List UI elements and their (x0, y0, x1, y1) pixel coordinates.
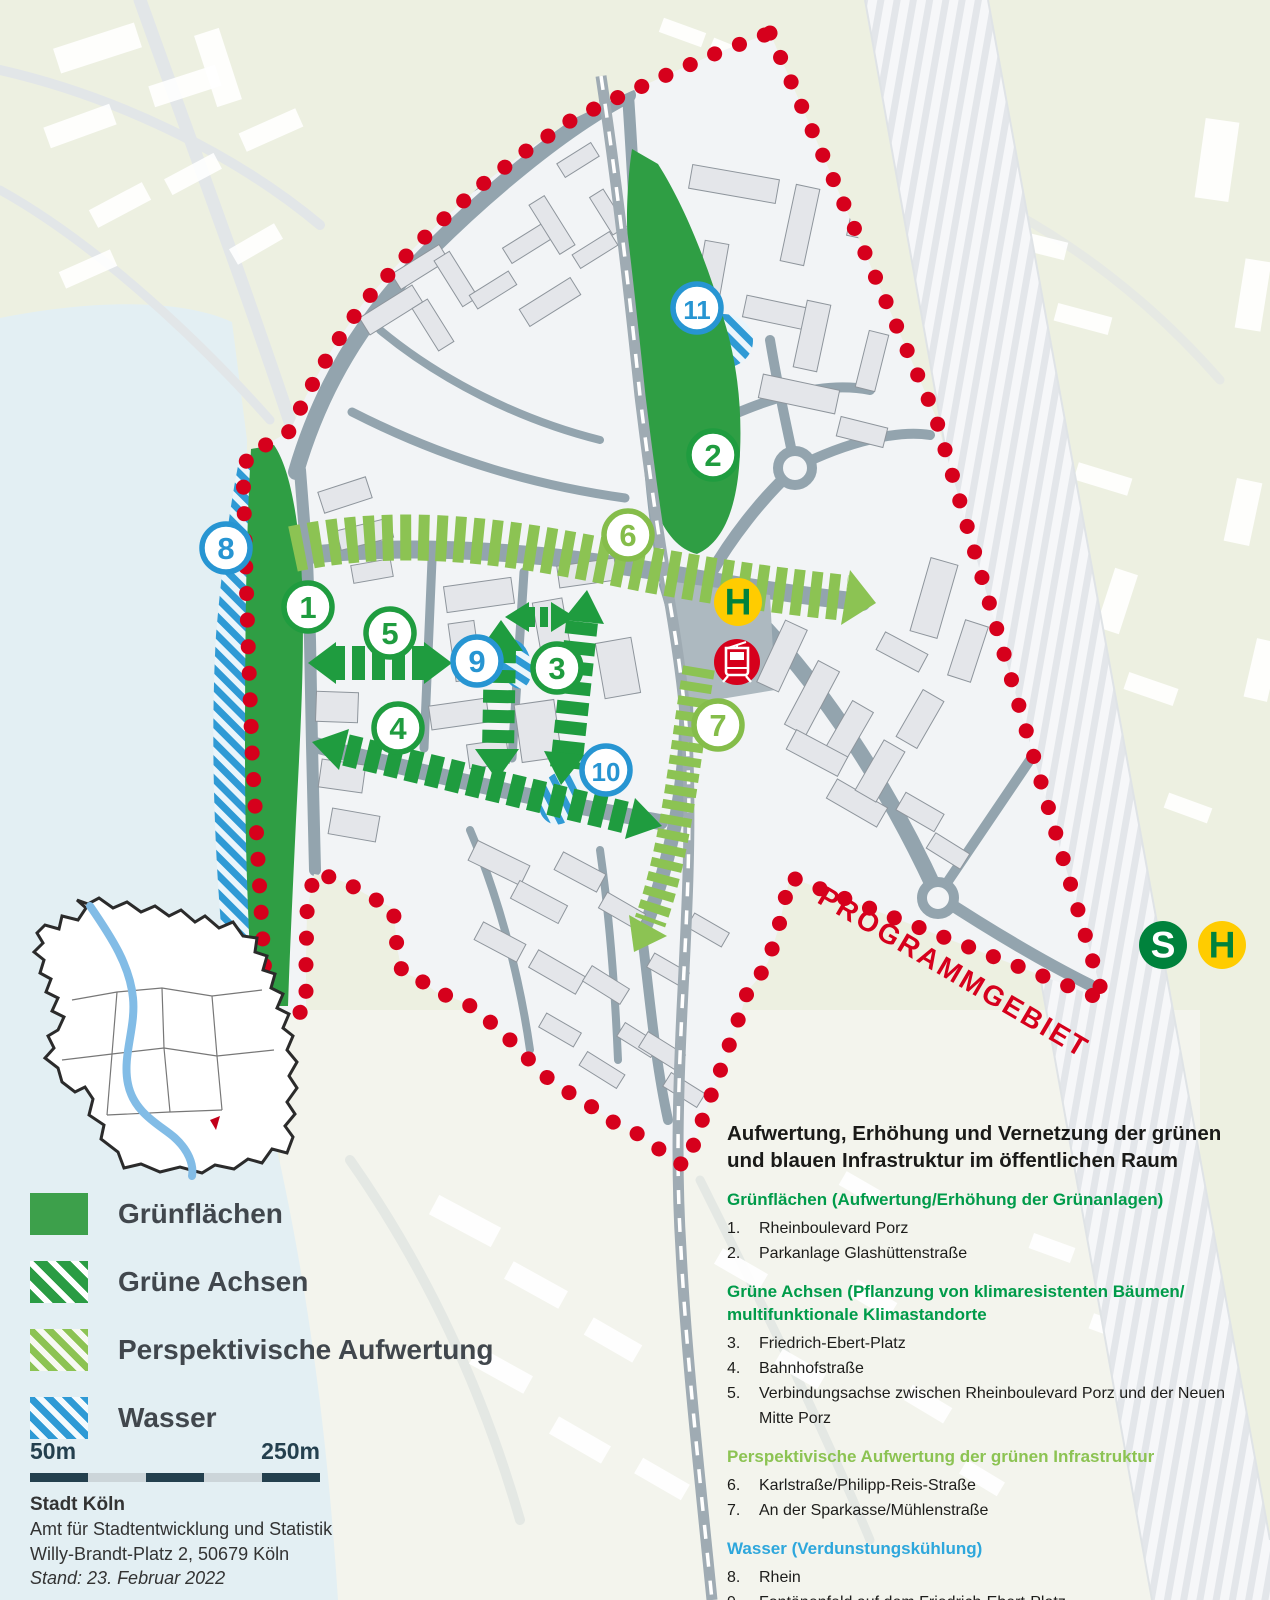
marker-7: 7 (694, 701, 742, 749)
legend-swatch-solid-green (30, 1193, 88, 1235)
marker-9: 9 (453, 637, 501, 685)
info-section-3: Wasser (Verdunstungskühlung)8.Rhein9.Fon… (727, 1537, 1249, 1600)
info-title-line2: und blauen Infrastruktur im öffentlichen… (727, 1147, 1249, 1174)
marker-6: 6 (604, 511, 652, 559)
marker-11: 11 (673, 284, 721, 332)
svg-text:6: 6 (619, 518, 636, 553)
section-list-item: 1.Rheinboulevard Porz (727, 1216, 1249, 1241)
legend-item-0: Grünflächen (30, 1192, 494, 1235)
plan-canvas: PROGRAMMGEBIET 1234567891011 HSH Grünflä… (0, 0, 1270, 1600)
scale-left-label: 50m (30, 1438, 76, 1465)
legend-label: Grünflächen (118, 1198, 283, 1230)
legend-item-1: Grüne Achsen (30, 1260, 494, 1303)
legend: GrünflächenGrüne AchsenPerspektivische A… (30, 1192, 494, 1464)
info-sections: Grünflächen (Aufwertung/Erhöhung der Grü… (727, 1188, 1249, 1600)
legend-label: Grüne Achsen (118, 1266, 308, 1298)
sbahn-icon: S (1139, 921, 1187, 969)
haltestelle-icon: H (714, 578, 762, 626)
marker-8: 8 (202, 524, 250, 572)
svg-text:H: H (1209, 924, 1236, 966)
inset-city-map (12, 880, 312, 1180)
section-heading: Perspektivische Aufwertung der grünen In… (727, 1445, 1249, 1468)
date-note: Stand: 23. Februar 2022 (30, 1568, 225, 1589)
section-list-item: 4.Bahnhofstraße (727, 1356, 1249, 1381)
scale-bar: 50m 250m (30, 1438, 320, 1482)
haltestelle-icon: H (1198, 921, 1246, 969)
scale-right-label: 250m (261, 1438, 320, 1465)
section-list-item: 2.Parkanlage Glashüttenstraße (727, 1241, 1249, 1266)
section-list-item: 6.Karlstraße/Philipp-Reis-Straße (727, 1473, 1249, 1498)
marker-10: 10 (582, 746, 630, 794)
marker-4: 4 (374, 704, 422, 752)
svg-text:10: 10 (592, 757, 621, 787)
roundabout (922, 882, 954, 914)
legend-swatch-hatch-blue (30, 1397, 88, 1439)
svg-text:S: S (1151, 924, 1176, 966)
legend-swatch-hatch-lightgreen (30, 1329, 88, 1371)
marker-1: 1 (284, 583, 332, 631)
section-list-item: 8.Rhein (727, 1565, 1249, 1590)
info-section-0: Grünflächen (Aufwertung/Erhöhung der Grü… (727, 1188, 1249, 1266)
info-section-2: Perspektivische Aufwertung der grünen In… (727, 1445, 1249, 1523)
svg-text:H: H (725, 581, 752, 623)
info-panel: Aufwertung, Erhöhung und Vernetzung der … (727, 1120, 1249, 1600)
marker-5: 5 (366, 609, 414, 657)
section-heading: Grüne Achsen (Pflanzung von klimaresiste… (727, 1280, 1249, 1326)
roundabout (778, 451, 812, 485)
info-section-1: Grüne Achsen (Pflanzung von klimaresiste… (727, 1280, 1249, 1431)
section-list-item: 3.Friedrich-Ebert-Platz (727, 1331, 1249, 1356)
marker-2: 2 (689, 431, 737, 479)
svg-text:1: 1 (299, 590, 316, 625)
section-heading: Grünflächen (Aufwertung/Erhöhung der Grü… (727, 1188, 1249, 1211)
marker-3: 3 (533, 644, 581, 692)
legend-swatch-hatch-darkgreen (30, 1261, 88, 1303)
section-heading: Wasser (Verdunstungskühlung) (727, 1537, 1249, 1560)
attribution-address: Willy-Brandt-Platz 2, 50679 Köln (30, 1542, 332, 1567)
attribution-org: Stadt Köln (30, 1492, 332, 1517)
section-list-item: 7.An der Sparkasse/Mühlenstraße (727, 1498, 1249, 1523)
attribution-dept: Amt für Stadtentwicklung und Statistik (30, 1517, 332, 1542)
legend-label: Wasser (118, 1402, 217, 1434)
svg-text:8: 8 (217, 531, 234, 566)
scale-bar-graphic (30, 1473, 320, 1482)
svg-text:5: 5 (381, 616, 398, 651)
info-title-line1: Aufwertung, Erhöhung und Vernetzung der … (727, 1120, 1249, 1147)
legend-label: Perspektivische Aufwertung (118, 1334, 494, 1366)
svg-text:2: 2 (704, 438, 721, 473)
svg-text:9: 9 (468, 644, 485, 679)
svg-text:11: 11 (683, 295, 711, 325)
section-list-item: 9.Fontänenfeld auf dem Friedrich-Ebert-P… (727, 1590, 1249, 1600)
svg-text:4: 4 (389, 711, 407, 746)
tram-station-icon (714, 639, 760, 685)
legend-item-3: Wasser (30, 1396, 494, 1439)
svg-text:3: 3 (548, 651, 565, 686)
svg-text:7: 7 (709, 708, 726, 743)
section-list-item: 5.Verbindungsachse zwischen Rheinbouleva… (727, 1381, 1249, 1431)
legend-item-2: Perspektivische Aufwertung (30, 1328, 494, 1371)
attribution: Stadt Köln Amt für Stadtentwicklung und … (30, 1492, 332, 1567)
